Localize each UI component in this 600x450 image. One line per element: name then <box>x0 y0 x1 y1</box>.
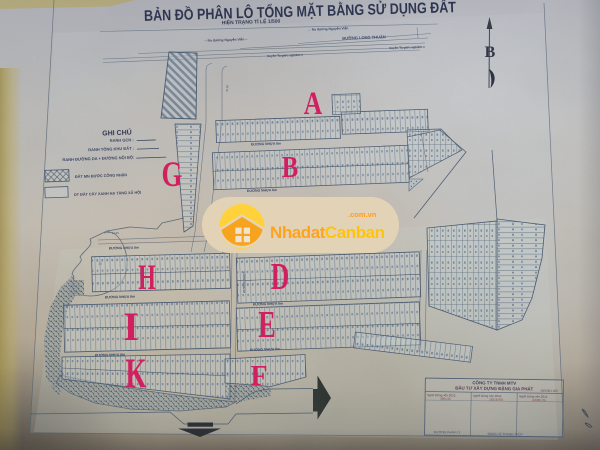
svg-text:.com.vn: .com.vn <box>348 210 377 219</box>
svg-text:G: G <box>162 154 183 194</box>
svg-text:H: H <box>138 257 156 297</box>
svg-text:I: I <box>123 304 139 349</box>
svg-text:A: A <box>304 86 323 122</box>
svg-text:B: B <box>282 149 299 184</box>
svg-text:K: K <box>126 352 147 398</box>
svg-text:D: D <box>271 256 290 298</box>
svg-text:E: E <box>258 304 276 346</box>
svg-text:F: F <box>250 361 267 392</box>
svg-text:NhadatCanban: NhadatCanban <box>270 223 385 242</box>
